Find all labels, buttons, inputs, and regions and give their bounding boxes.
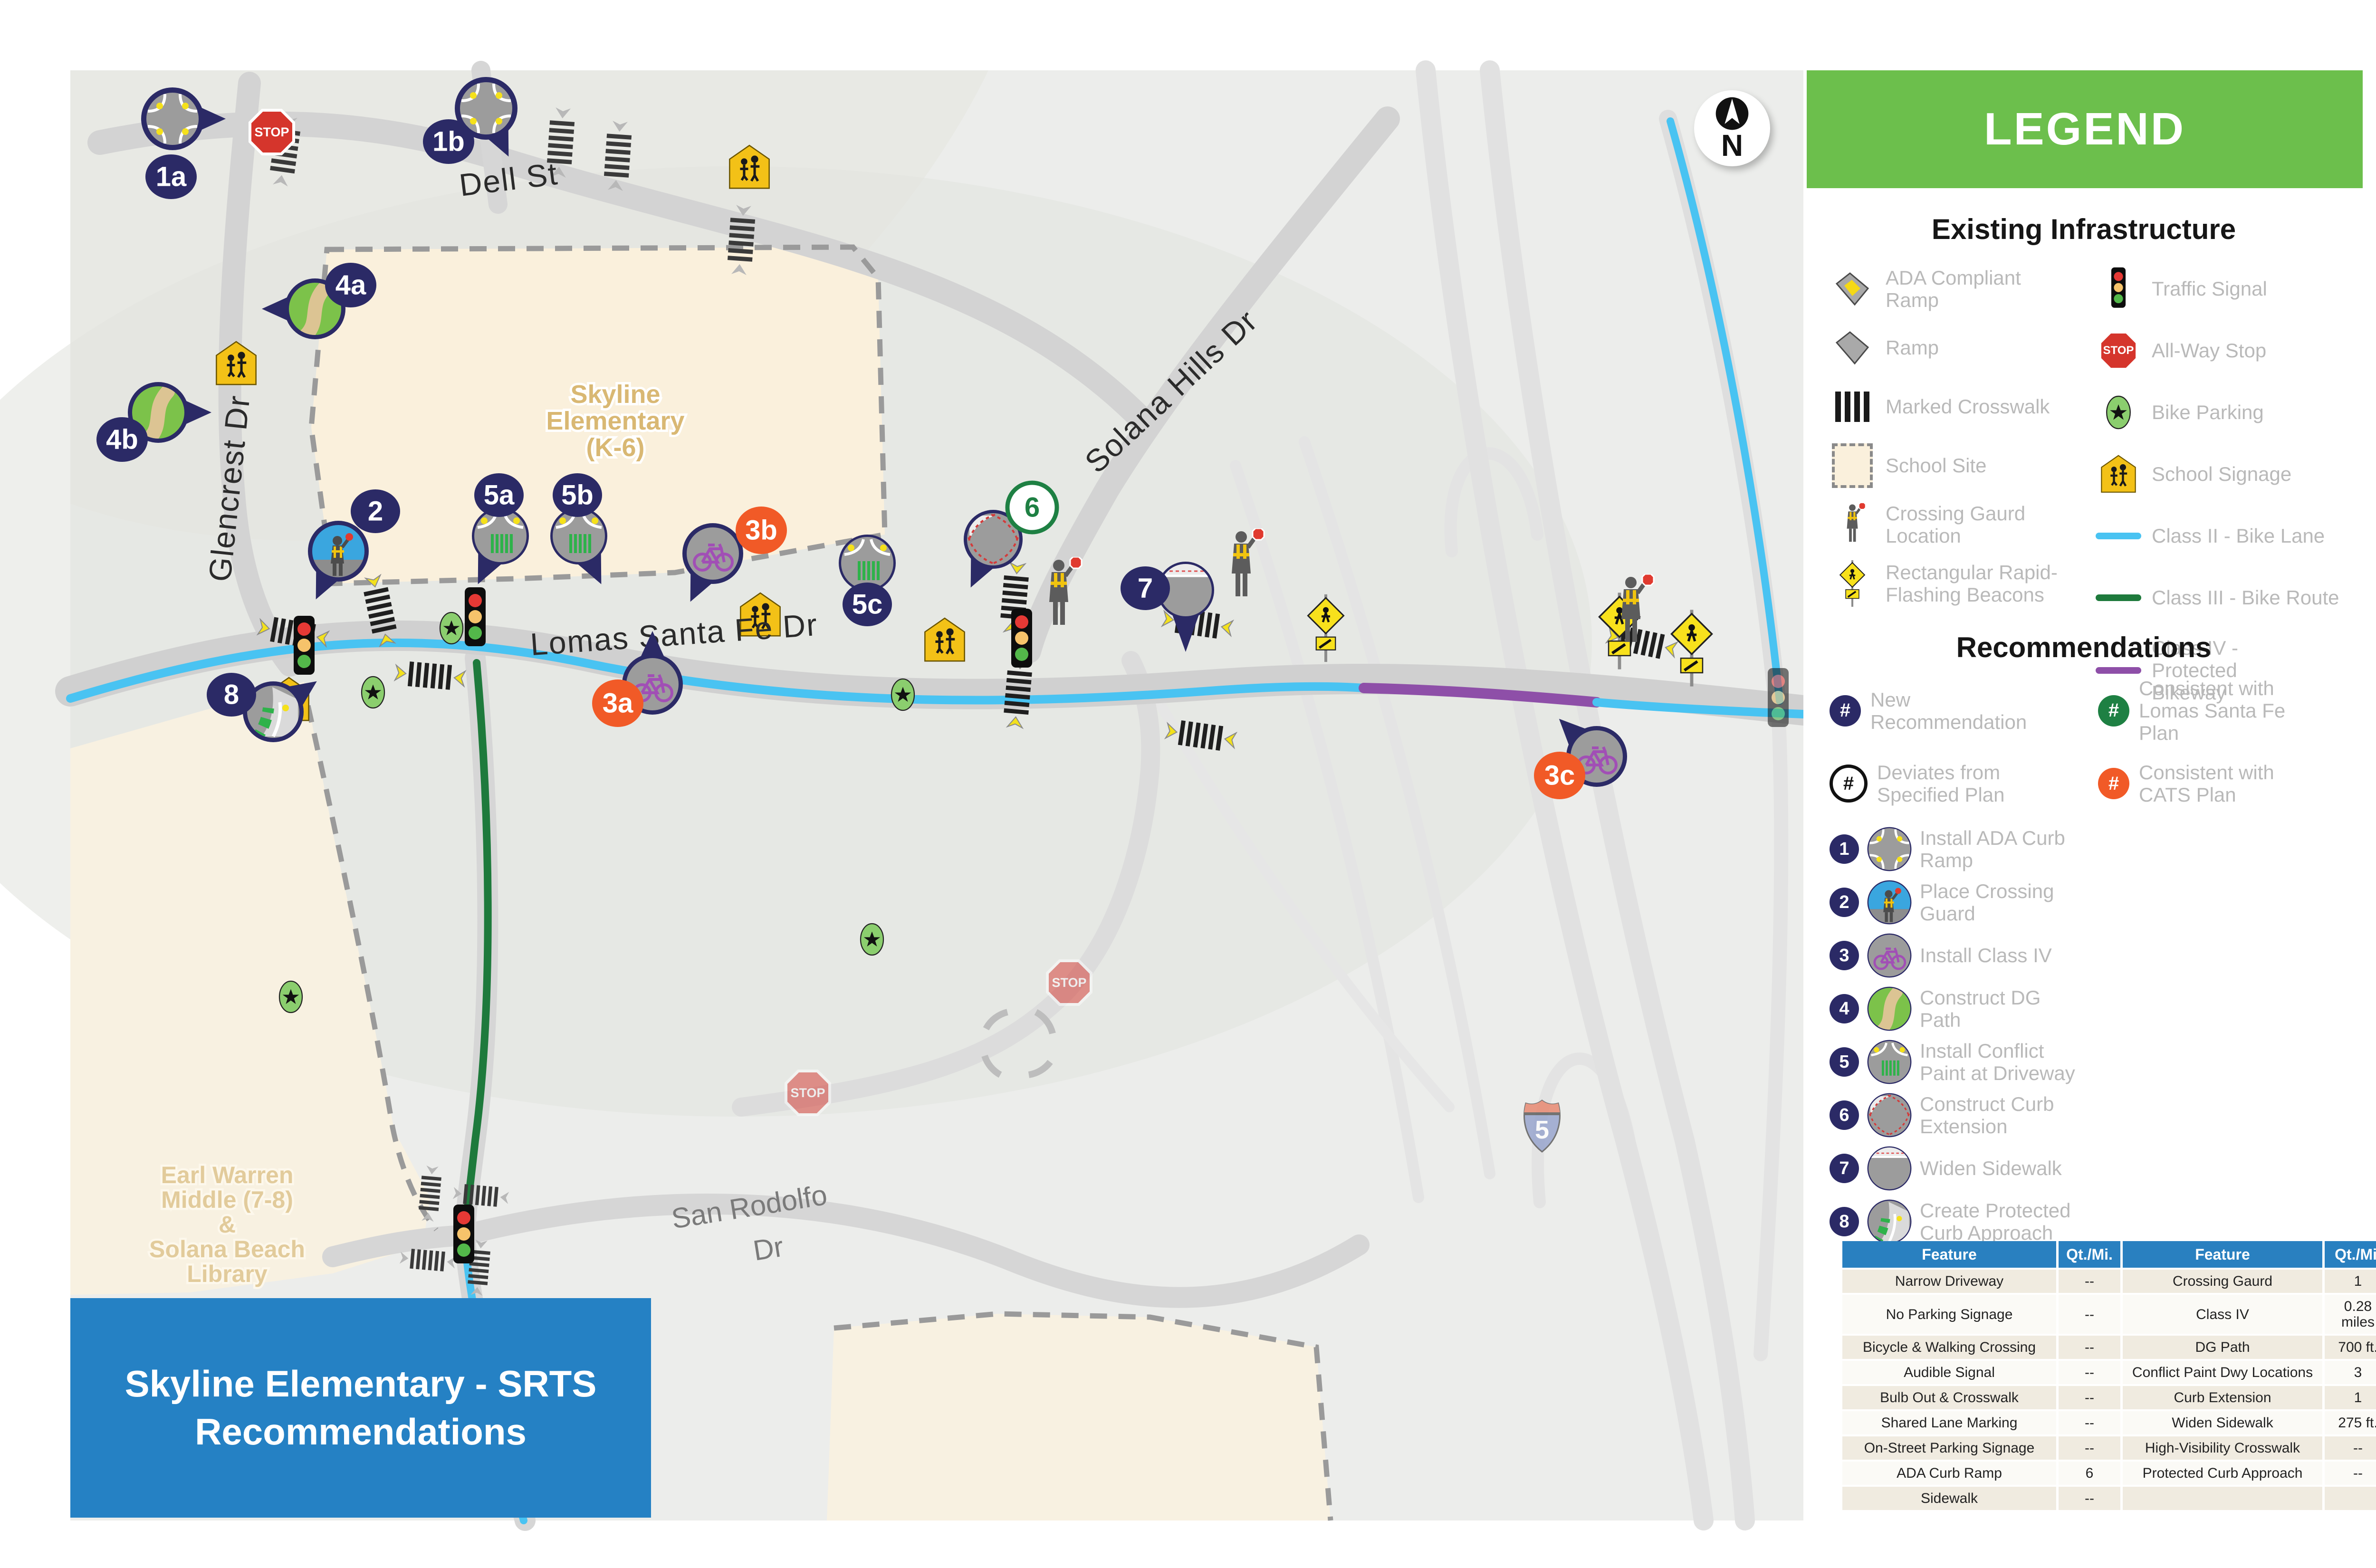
svg-text:5c: 5c [852,589,883,620]
bottom-campus-area [827,1314,1331,1520]
table-header: Feature [2123,1241,2322,1268]
svg-text:Solana Beach: Solana Beach [149,1236,305,1262]
table-header: Feature [1842,1241,2056,1268]
table-cell: -- [2059,1336,2120,1359]
class3-line-icon [2096,575,2141,621]
svg-text:1b: 1b [432,126,465,157]
crossing-guard-location-icon [1830,502,1875,547]
table-cell: -- [2059,1361,2120,1384]
table-cell: Bulb Out & Crosswalk [1842,1386,2056,1409]
table-cell: On-Street Parking Signage [1842,1436,2056,1460]
construct-curb-extension-icon [1867,1092,1912,1138]
svg-text:3b: 3b [745,515,777,546]
svg-text:(K-6): (K-6) [586,433,645,462]
svg-text:Elementary: Elementary [546,407,684,435]
legend-item-school-site: School Site [1830,443,2096,488]
svg-text:2: 2 [368,496,383,527]
svg-text:5a: 5a [484,480,515,511]
rec-item-1: 1 Install ADA Curb Ramp [1830,824,2162,874]
key-consistent-lomas: # Consistent with Lomas Santa Fe Plan [2098,677,2366,744]
table-cell: -- [2059,1270,2120,1293]
table-cell [2325,1487,2376,1510]
svg-text:3a: 3a [603,688,633,719]
table-cell: -- [2059,1386,2120,1409]
school-site-icon [1830,443,1875,488]
table-cell: High-Visibility Crosswalk [2123,1436,2322,1460]
rec-item-6: 6 Construct Curb Extension [1830,1090,2162,1140]
svg-text:STOP: STOP [1052,975,1086,990]
widen-sidewalk-icon [1867,1146,1912,1191]
table-cell: Class IV [2123,1295,2322,1334]
svg-text:STOP: STOP [790,1086,825,1100]
key-deviates-plan: # Deviates from Specified Plan [1830,761,2098,806]
map-title-box: Skyline Elementary - SRTS Recommendation… [70,1298,651,1518]
install-class4-icon [1867,933,1912,978]
table-cell: 3 [2325,1361,2376,1384]
stop-sign-text: STOP [254,125,289,139]
svg-text:Middle (7-8): Middle (7-8) [161,1186,293,1213]
table-cell: Shared Lane Marking [1842,1411,2056,1434]
class2-line-icon [2096,513,2141,559]
traffic-signal-icon [2096,266,2141,312]
table-cell: 700 ft. [2325,1336,2376,1359]
rec-item-5: 5 Install Conflict Paint at Driveway [1830,1037,2162,1087]
table-cell: -- [2325,1462,2376,1485]
recommendations-title: Recommendations [1803,631,2364,664]
table-cell: Protected Curb Approach [2123,1462,2322,1485]
legend-item-ramp: Ramp [1830,325,2096,371]
table-cell: -- [2325,1436,2376,1460]
legend-item-school-signage: School Signage [2096,451,2366,497]
legend-header: LEGEND [1807,70,2363,188]
place-crossing-guard-icon [1867,880,1912,925]
deviates-plan-badge: # [1830,765,1868,803]
legend-item-marked-crosswalk: Marked Crosswalk [1830,384,2096,430]
legend-item-ada-compliant-ramp: ADA Compliant Ramp [1830,266,2096,312]
table-cell: Curb Extension [2123,1386,2322,1409]
svg-text:4b: 4b [106,424,138,455]
school-signage-icon [2096,451,2141,497]
create-protected-curb-approach-icon [1867,1199,1912,1244]
rec-item-4: 4 Construct DG Path [1830,984,2162,1033]
svg-text:Library: Library [187,1261,268,1287]
svg-text:4a: 4a [335,270,366,301]
legend-item-traffic-signal: Traffic Signal [2096,266,2366,312]
all-way-stop-icon: STOP [2096,328,2141,373]
table-cell: -- [2059,1487,2120,1510]
north-arrow-icon [1714,95,1751,132]
svg-text:3c: 3c [1544,760,1575,791]
svg-text:6: 6 [1025,492,1040,523]
ramp-icon [1830,325,1875,371]
table-cell: 275 ft. [2325,1411,2376,1434]
compass-rose: N [1694,90,1770,166]
compass-north-label: N [1721,132,1743,160]
rec-item-8: 8 Create Protected Curb Approach [1830,1197,2162,1246]
page: { "title_box": {"text": "Skyline Element… [0,0,2376,1568]
table-cell: Bicycle & Walking Crossing [1842,1336,2056,1359]
table-cell [2123,1487,2322,1510]
legend-item-class3: Class III - Bike Route [2096,575,2366,621]
svg-text:Earl Warren: Earl Warren [161,1162,294,1188]
table-cell: No Parking Signage [1842,1295,2056,1334]
table-cell: DG Path [2123,1336,2322,1359]
table-cell: Widen Sidewalk [2123,1411,2322,1434]
table-cell: -- [2059,1436,2120,1460]
all-way-stop-icon: STOP [250,110,294,154]
legend-item-class2: Class II - Bike Lane [2096,513,2366,559]
table-header: Qt./Mi. [2325,1241,2376,1268]
marked-crosswalk-icon [1830,384,1875,430]
table-cell: Audible Signal [1842,1361,2056,1384]
bike-parking-icon [2096,390,2141,435]
table-cell: Crossing Gaurd [2123,1270,2322,1293]
rec-item-3: 3 Install Class IV [1830,931,2162,980]
install-ada-curb-ramp-icon [1867,826,1912,872]
legend-title: LEGEND [1984,103,2185,155]
key-new-recommendation: # New Recommendation [1830,677,2098,744]
table-cell: ADA Curb Ramp [1842,1462,2056,1485]
interstate-5-number: 5 [1535,1116,1549,1144]
legend-item-rrfb: Rectangular Rapid-Flashing Beacons [1830,561,2096,606]
new-recommendation-badge: # [1830,695,1861,727]
stop-sign-faded-2: STOP [1047,961,1091,1004]
construct-dg-path-icon [1867,986,1912,1032]
table-cell: -- [2059,1411,2120,1434]
rrfb-icon [1830,561,1875,606]
stop-sign-faded-1: STOP [786,1071,830,1115]
existing-infrastructure-title: Existing Infrastructure [1803,213,2364,246]
consistent-lomas-badge: # [2098,695,2129,727]
table-cell: 6 [2059,1462,2120,1485]
rec-item-2: 2 Place Crossing Guard [1830,878,2162,927]
marker-5c: 5c [839,535,896,626]
map-title: Skyline Elementary - SRTS Recommendation… [125,1360,597,1456]
svg-text:8: 8 [224,679,239,710]
table-cell: -- [2059,1295,2120,1334]
legend-item-bike-parking: Bike Parking [2096,390,2366,435]
table-cell: Narrow Driveway [1842,1270,2056,1293]
table-cell: 1 [2325,1386,2376,1409]
svg-text:Skyline: Skyline [570,380,660,409]
svg-text:1a: 1a [156,162,187,192]
key-consistent-cats: # Consistent with CATS Plan [2098,761,2366,806]
rec-item-7: 7 Widen Sidewalk [1830,1144,2162,1193]
feature-summary-table: Feature Qt./Mi. Feature Qt./Mi. Narrow D… [1842,1241,2376,1510]
svg-text:5b: 5b [561,480,594,511]
legend-item-crossing-guard-location: Crossing Gaurd Location [1830,502,2096,547]
consistent-cats-badge: # [2098,768,2129,799]
install-conflict-paint-icon [1867,1039,1912,1085]
svg-text:Dr: Dr [751,1231,786,1267]
table-cell: 1 [2325,1270,2376,1293]
svg-text:&: & [219,1211,236,1238]
legend-item-all-way-stop: STOP All-Way Stop [2096,328,2366,373]
legend-panel: LEGEND Existing Infrastructure ADA Compl… [1803,0,2376,1568]
table-cell: 0.28 miles [2325,1295,2376,1334]
table-cell: Sidewalk [1842,1487,2056,1510]
table-cell: Conflict Paint Dwy Locations [2123,1361,2322,1384]
svg-text:7: 7 [1138,573,1153,604]
table-header: Qt./Mi. [2059,1241,2120,1268]
ada-compliant-ramp-icon [1830,266,1875,312]
